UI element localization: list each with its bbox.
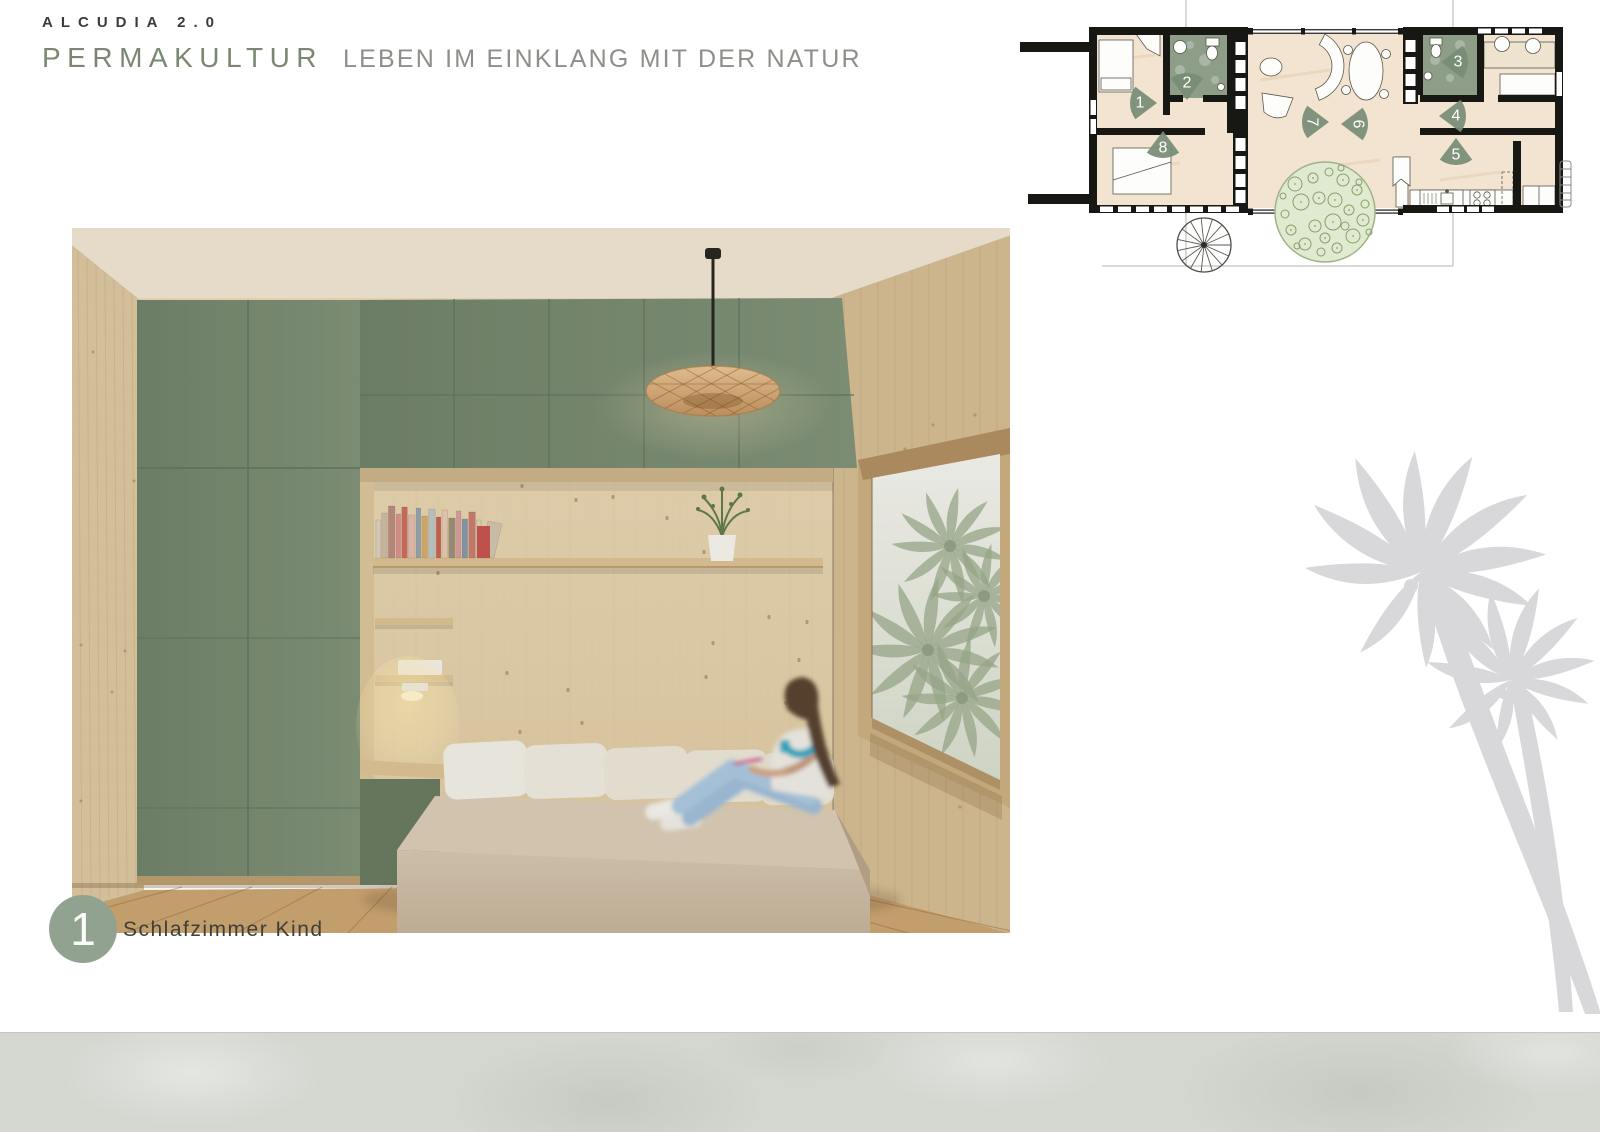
svg-text:6: 6 <box>1350 120 1367 129</box>
svg-text:1: 1 <box>1136 95 1145 112</box>
plan-tree-circle <box>1275 162 1375 262</box>
project-name: ALCUDIA 2.0 <box>42 14 862 31</box>
page-title: PERMAKULTUR <box>42 42 323 74</box>
svg-text:3: 3 <box>1454 54 1463 71</box>
page-subtitle: LEBEN IM EINKLANG MIT DER NATUR <box>343 45 862 74</box>
svg-text:4: 4 <box>1452 108 1461 125</box>
interior-rendering <box>72 228 1010 933</box>
svg-text:2: 2 <box>1183 75 1192 92</box>
floor-plan: 12345678 <box>1000 0 1600 290</box>
page-header: ALCUDIA 2.0 PERMAKULTUR LEBEN IM EINKLAN… <box>42 14 862 74</box>
caption-number-badge: 1 <box>49 895 117 963</box>
svg-text:5: 5 <box>1452 147 1461 164</box>
caption-label: Schlafzimmer Kind <box>123 918 324 942</box>
concrete-footer-band <box>0 1032 1600 1132</box>
svg-text:8: 8 <box>1159 140 1168 157</box>
svg-text:7: 7 <box>1304 118 1321 127</box>
plan-spiral-stair <box>1177 218 1231 272</box>
palm-watermark-image <box>1253 422 1600 1025</box>
